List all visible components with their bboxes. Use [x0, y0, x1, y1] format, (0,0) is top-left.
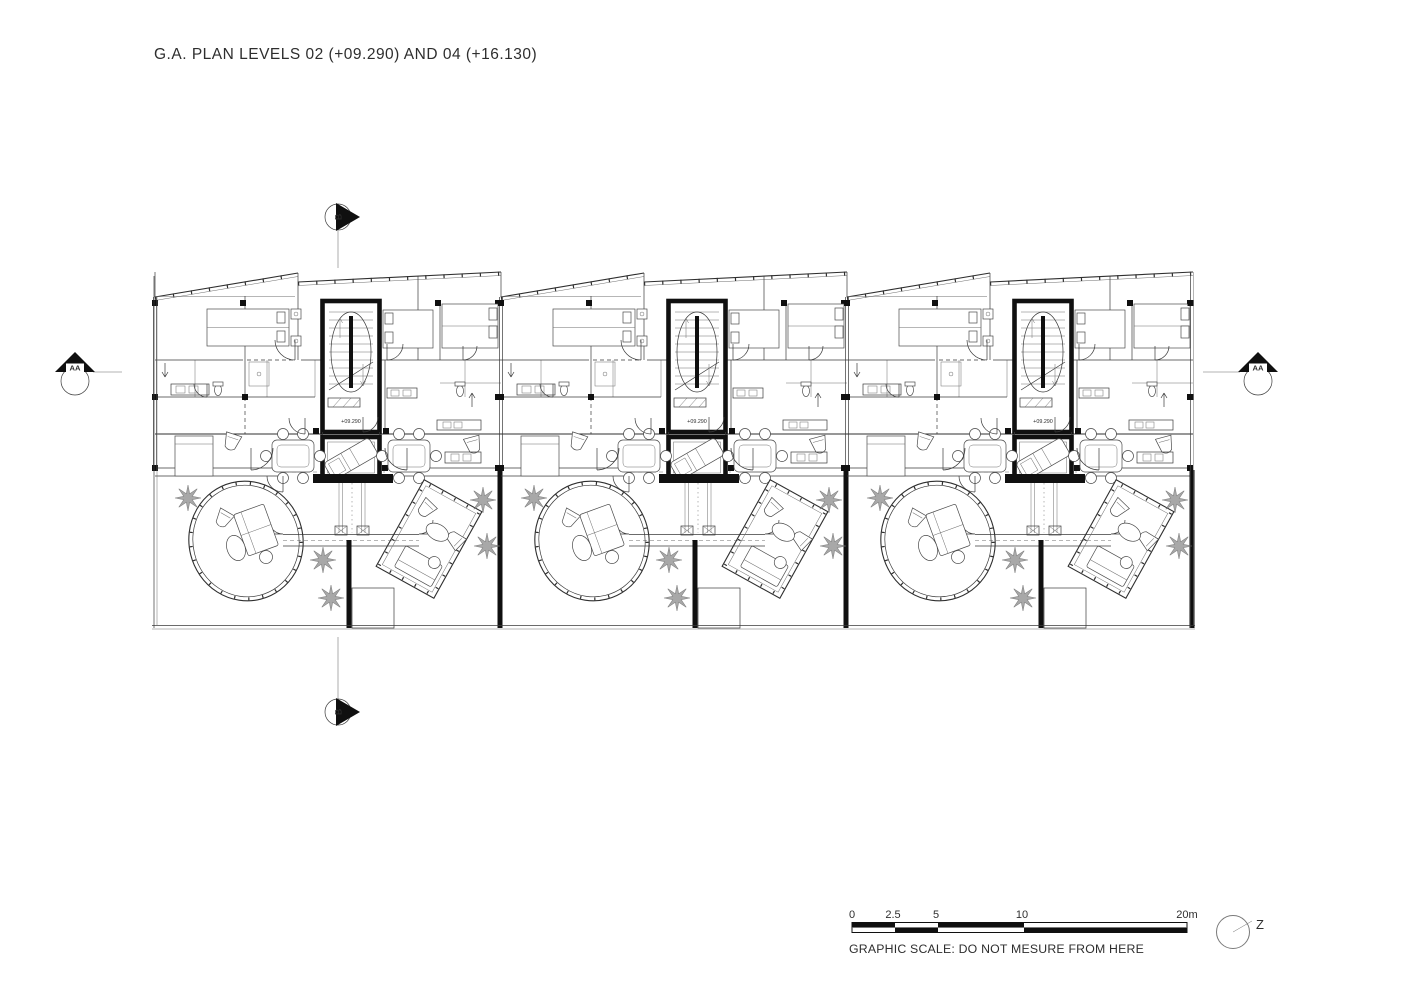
section-aa-right-label: AA [1253, 364, 1264, 373]
plan-sheet-canvas: +09.290 [0, 0, 1415, 1000]
drawing-title: G.A. PLAN LEVELS 02 (+09.290) AND 04 (+1… [154, 46, 537, 63]
residential-unit-1 [152, 272, 503, 628]
north-label: Z [1256, 917, 1264, 932]
section-b-bottom-label: B [334, 709, 345, 715]
section-marker-b-bottom: B [325, 637, 360, 726]
scale-tick-10: 10 [1016, 909, 1028, 921]
section-b-top-label: B [334, 214, 345, 220]
drawing-sheet: +09.290 [0, 0, 1415, 1000]
residential-unit-2 [498, 272, 849, 628]
north-arrow: Z [1217, 916, 1265, 949]
scale-tick-20m: 20m [1176, 909, 1197, 921]
scale-tick-5: 5 [933, 909, 939, 921]
scale-tick-0: 0 [849, 909, 855, 921]
residential-unit-3 [844, 272, 1195, 628]
section-aa-left-label: AA [70, 364, 81, 373]
scale-bar: 0 2.5 5 10 20m GRAPHIC SCALE: DO NOT MES… [849, 909, 1198, 956]
section-marker-b-top: B [325, 203, 360, 268]
floor-plan [152, 272, 1195, 629]
section-marker-aa-left: AA [55, 352, 122, 395]
scale-caption: GRAPHIC SCALE: DO NOT MESURE FROM HERE [849, 942, 1144, 956]
scale-tick-2-5: 2.5 [885, 909, 900, 921]
section-marker-aa-right: AA [1203, 352, 1278, 395]
